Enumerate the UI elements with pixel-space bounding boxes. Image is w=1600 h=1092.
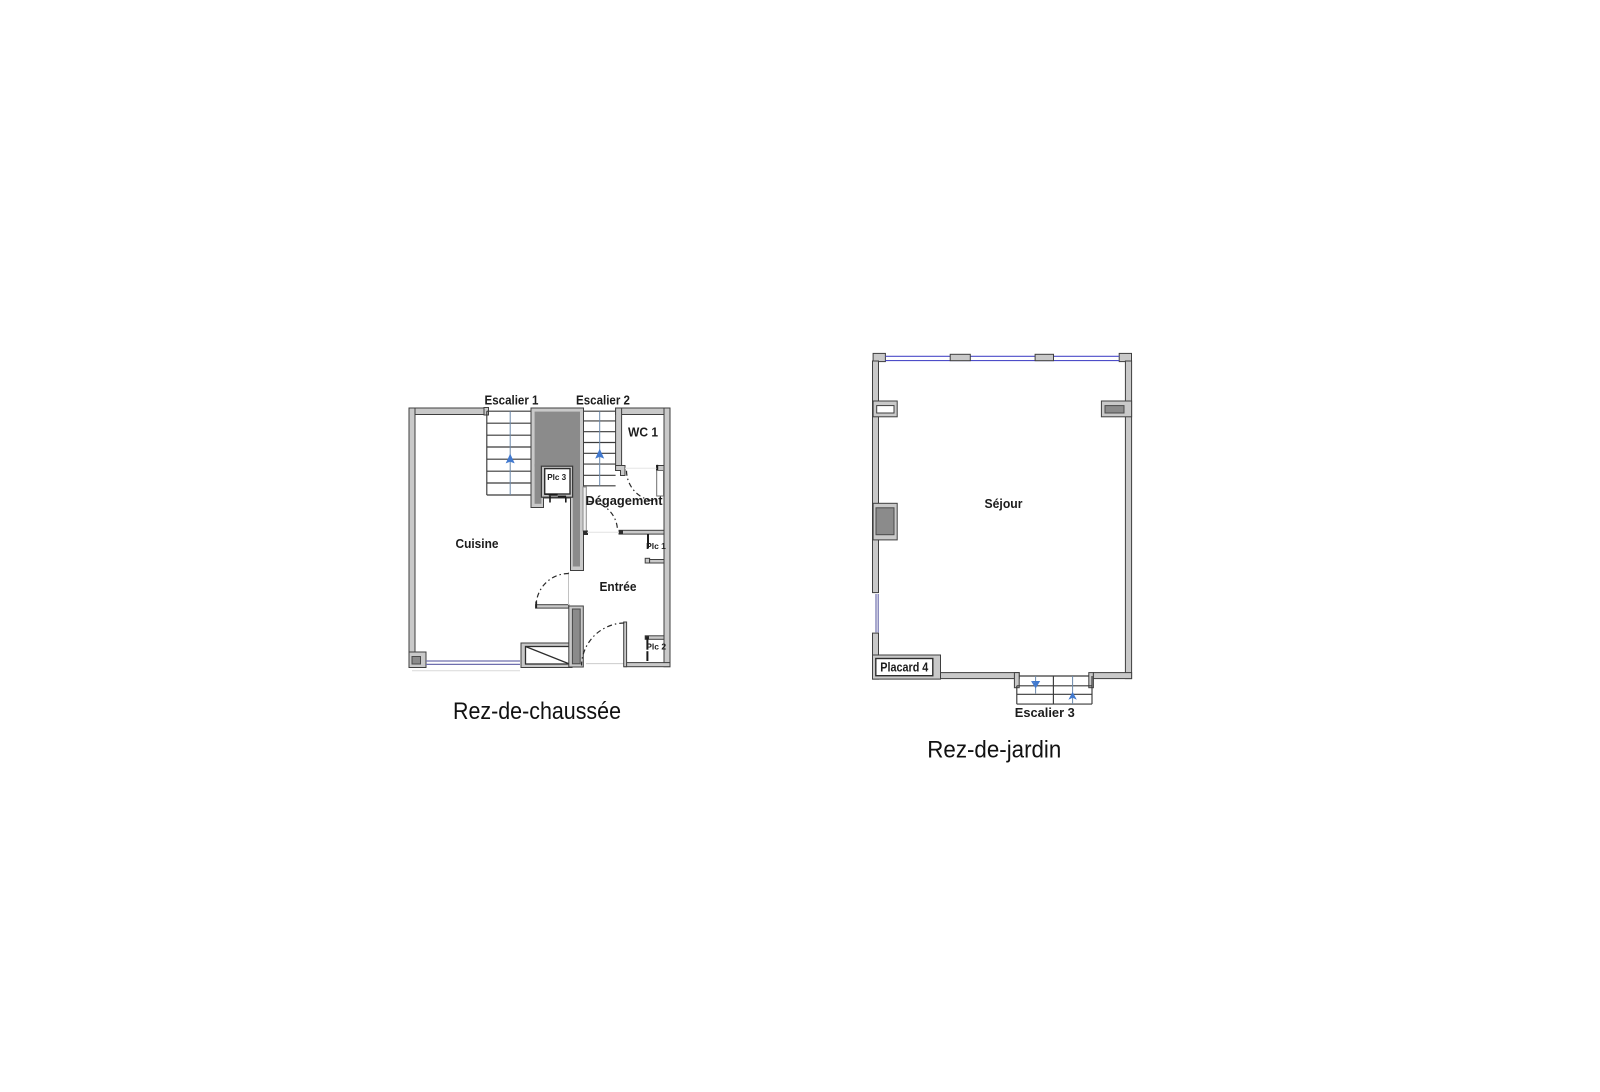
svg-text:Escalier 2: Escalier 2 [576,394,630,408]
svg-text:Rez-de-chaussée: Rez-de-chaussée [453,698,621,725]
svg-text:Escalier 3: Escalier 3 [1015,706,1075,720]
svg-text:Plc 1: Plc 1 [646,541,666,551]
svg-text:WC 1: WC 1 [628,426,658,440]
svg-text:Placard 4: Placard 4 [880,661,928,675]
svg-text:Cuisine: Cuisine [456,537,499,551]
svg-text:Entrée: Entrée [600,580,637,594]
svg-text:Rez-de-jardin: Rez-de-jardin [927,737,1061,764]
svg-text:Dégagement: Dégagement [586,494,664,508]
svg-text:Plc 2: Plc 2 [646,642,666,652]
svg-text:Plc 3: Plc 3 [547,472,566,482]
svg-text:Séjour: Séjour [985,497,1023,511]
svg-text:Escalier 1: Escalier 1 [485,394,539,408]
